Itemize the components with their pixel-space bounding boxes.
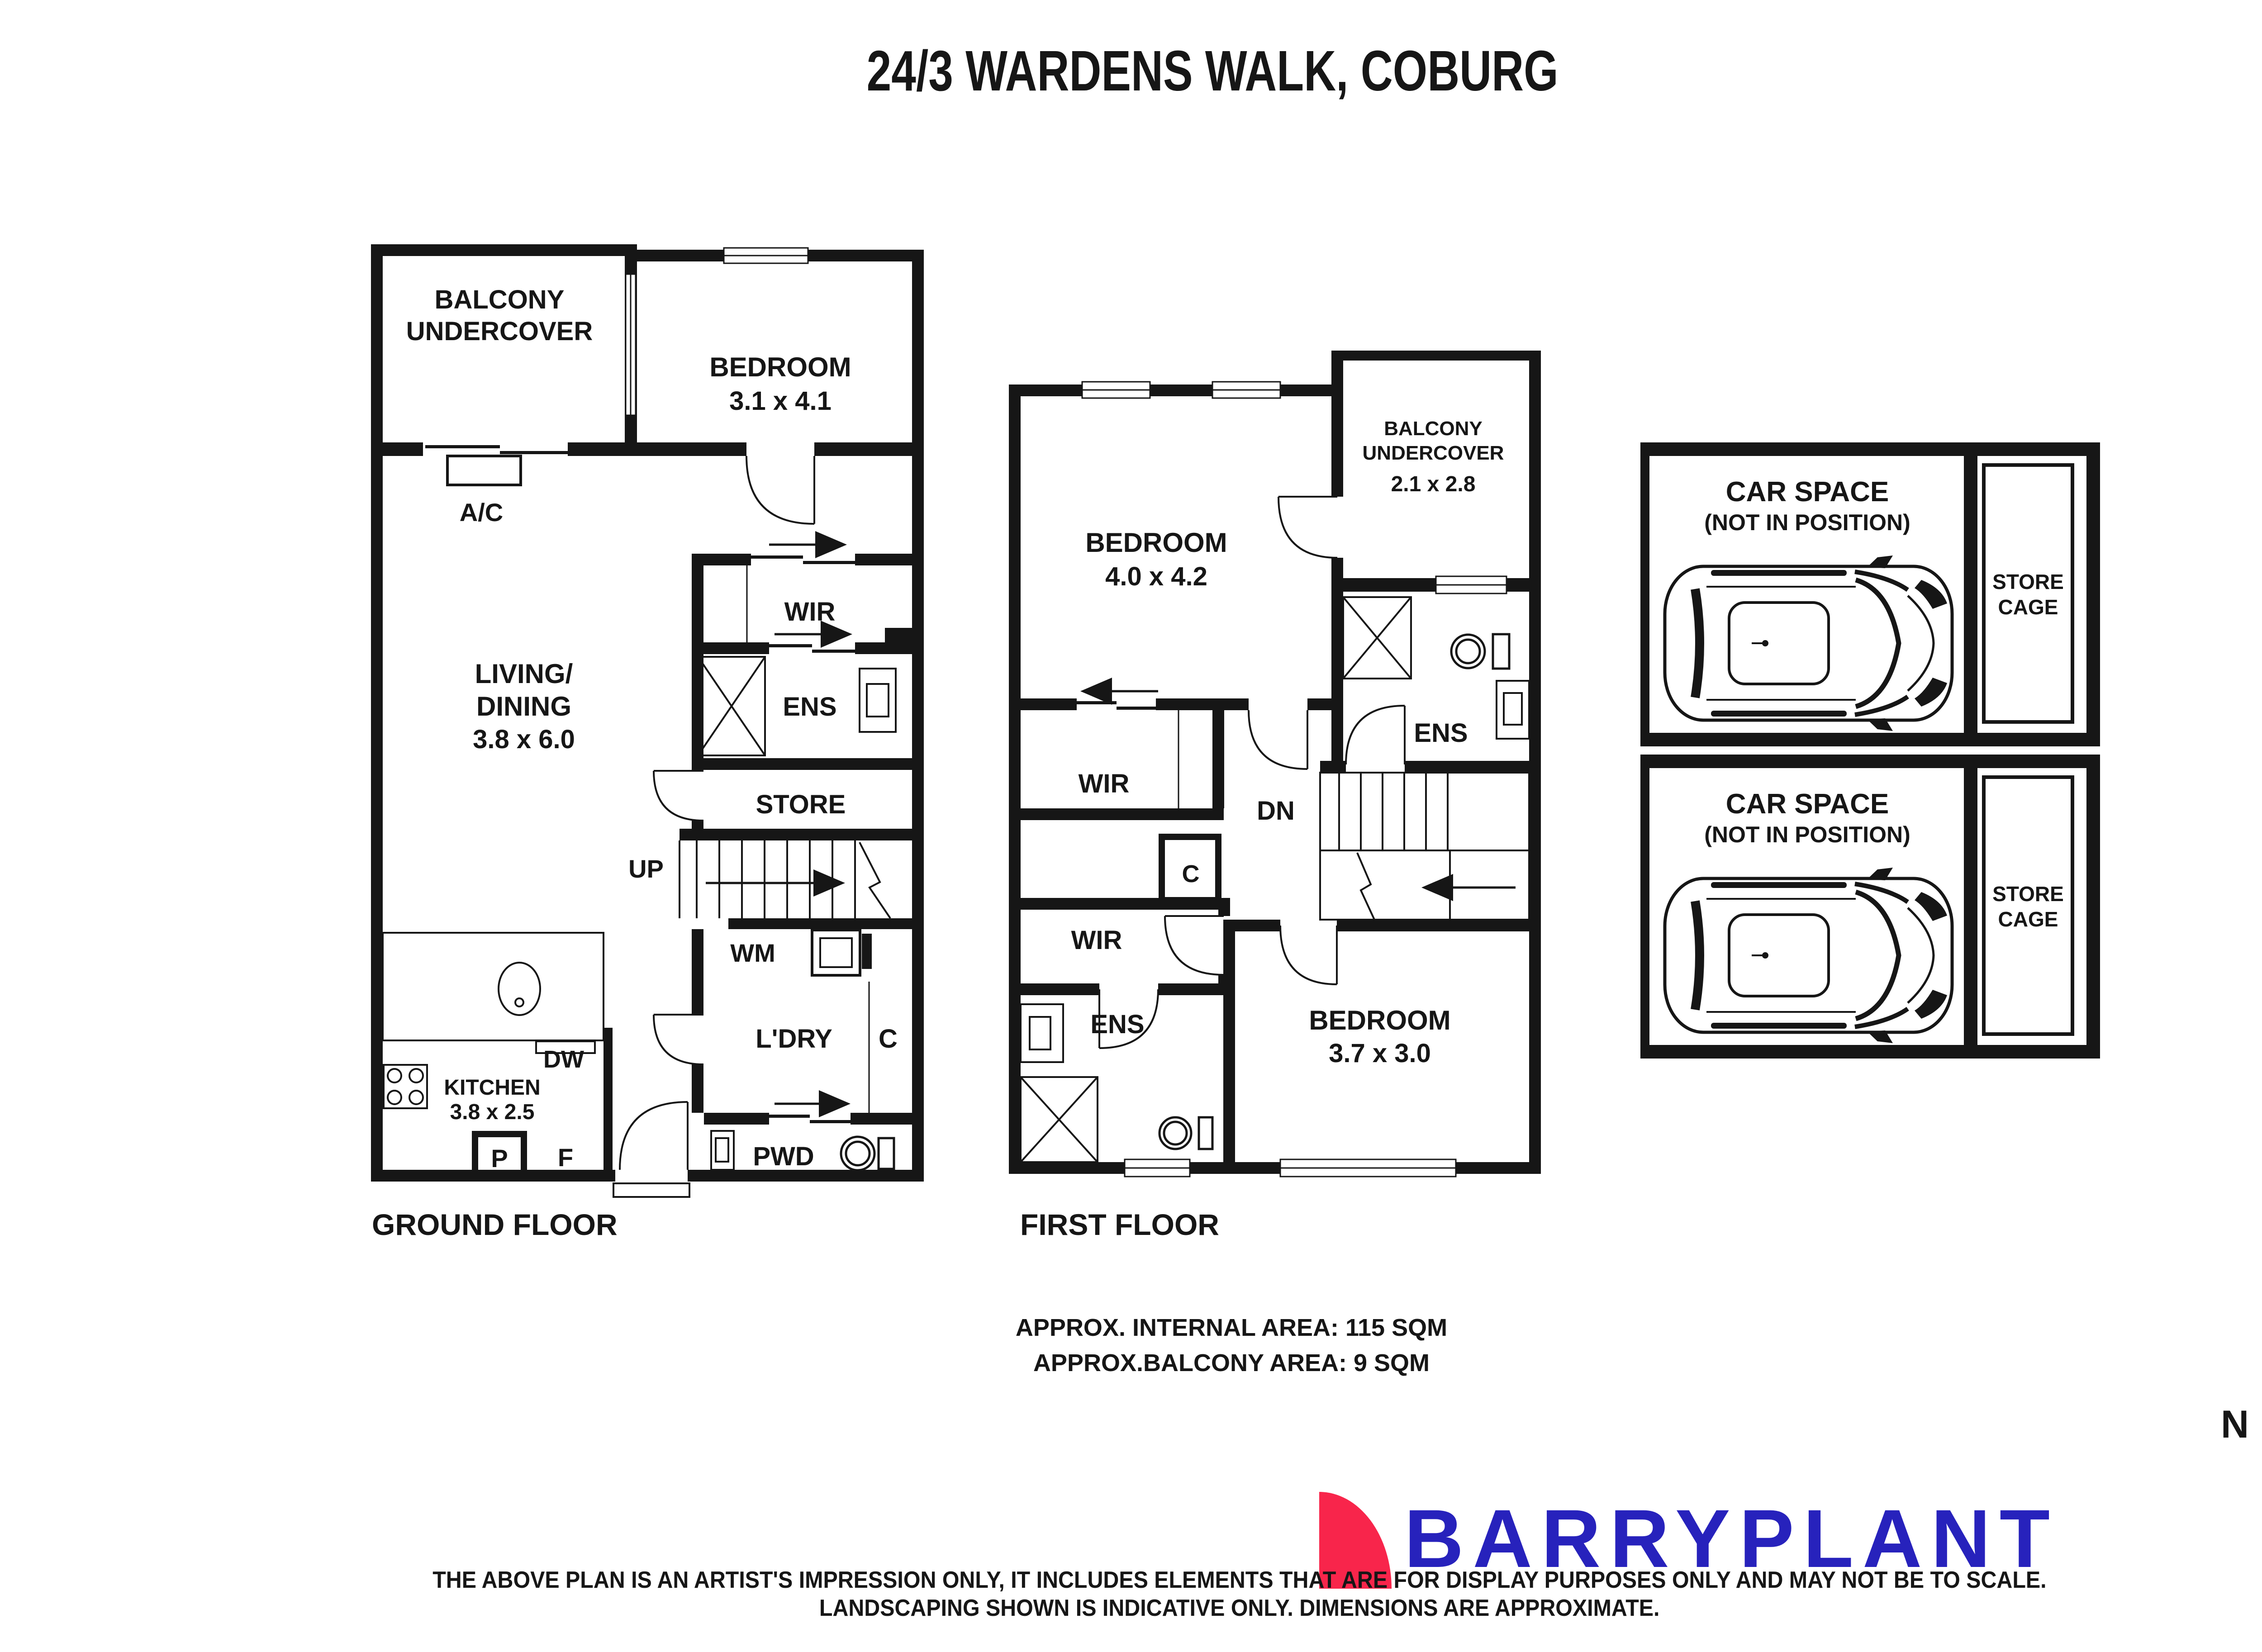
car-space-1-sublabel: (NOT IN POSITION) xyxy=(1704,510,1910,535)
gf-kitchen-label: KITCHEN xyxy=(444,1076,540,1100)
gf-bedroom-dims: 3.1 x 4.1 xyxy=(729,386,832,416)
ff-wir1-label: WIR xyxy=(1079,769,1130,798)
gf-ens-shower xyxy=(698,657,765,755)
balcony-area-text: APPROX.BALCONY AREA: 9 SQM xyxy=(915,1345,1548,1381)
north-compass: N xyxy=(2194,1348,2262,1506)
gf-stairs xyxy=(680,840,890,918)
store-cage-2 xyxy=(1984,777,2072,1034)
gf-f-label: F xyxy=(558,1143,573,1172)
ff-windows xyxy=(1082,382,1506,1177)
ff-ens1-label: ENS xyxy=(1414,718,1468,748)
gf-ens-label: ENS xyxy=(783,692,836,722)
ff-c-label: C xyxy=(1182,860,1200,888)
gf-bedroom-label: BEDROOM xyxy=(709,352,851,382)
ff-ens2-label: ENS xyxy=(1090,1010,1144,1039)
gf-sliding-doors xyxy=(425,445,855,1123)
ff-balcony-dims: 2.1 x 2.8 xyxy=(1391,472,1476,496)
store-cage-2-label-1: STORE xyxy=(1992,882,2064,906)
gf-store-label: STORE xyxy=(756,790,846,819)
north-label: N xyxy=(2221,1403,2249,1446)
gf-wir-label: WIR xyxy=(784,597,836,627)
washing-machine xyxy=(812,930,872,975)
store-cage-2-label-2: CAGE xyxy=(1998,907,2058,931)
ground-floor-plan: BALCONY UNDERCOVER BEDROOM 3.1 x 4.1 A/C… xyxy=(362,199,959,1248)
first-floor-plan: BEDROOM 4.0 x 4.2 BALCONY UNDERCOVER 2.1… xyxy=(1000,339,1574,1271)
gf-ac-label: A/C xyxy=(460,498,503,527)
ff-dn-label: DN xyxy=(1257,796,1295,826)
entry-step xyxy=(613,1183,689,1197)
area-summary: APPROX. INTERNAL AREA: 115 SQM APPROX.BA… xyxy=(915,1310,1548,1381)
car-space-1-label: CAR SPACE xyxy=(1726,476,1889,508)
ff-bedroom3-label: BEDROOM xyxy=(1309,1005,1450,1035)
gf-p-label: P xyxy=(491,1144,508,1173)
first-floor-title: FIRST FLOOR xyxy=(1020,1208,1219,1241)
car-1-icon xyxy=(1665,555,1952,731)
ff-bedroom2-dims: 4.0 x 4.2 xyxy=(1105,562,1207,591)
internal-area-text: APPROX. INTERNAL AREA: 115 SQM xyxy=(915,1310,1548,1345)
cooktop xyxy=(384,1065,427,1108)
ff-bedroom3-dims: 3.7 x 3.0 xyxy=(1329,1039,1431,1068)
ground-floor-title: GROUND FLOOR xyxy=(372,1208,618,1241)
store-cage-1-label-1: STORE xyxy=(1992,570,2064,593)
car-space-2-sublabel: (NOT IN POSITION) xyxy=(1704,822,1910,847)
gf-kitchen-dims: 3.8 x 2.5 xyxy=(450,1100,535,1124)
ff-sliding-doors xyxy=(1077,701,1156,710)
disclaimer: THE ABOVE PLAN IS AN ARTIST'S IMPRESSION… xyxy=(344,1566,2135,1622)
gf-living-label-1: LIVING/ xyxy=(475,659,573,689)
gf-balcony-label-2: UNDERCOVER xyxy=(406,317,593,346)
store-cage-1 xyxy=(1984,465,2072,722)
gf-c-label: C xyxy=(879,1024,898,1054)
page-title: 24/3 WARDENS WALK, COBURG xyxy=(769,38,1651,106)
gf-ldry-label: L'DRY xyxy=(756,1024,832,1054)
gf-wm-label: WM xyxy=(730,939,775,967)
gf-balcony-label-1: BALCONY xyxy=(435,285,565,314)
gf-living-label-2: DINING xyxy=(476,691,571,722)
store-cage-1-label-2: CAGE xyxy=(1998,595,2058,619)
pwd-toilet xyxy=(841,1137,894,1170)
ac-unit xyxy=(447,456,521,485)
car-spaces-plan: CAR SPACE (NOT IN POSITION) STORE CAGE C… xyxy=(1629,430,2140,1072)
disclaimer-line-1: THE ABOVE PLAN IS AN ARTIST'S IMPRESSION… xyxy=(344,1566,2135,1594)
gf-dw-label: DW xyxy=(543,1046,584,1073)
gf-living-dims: 3.8 x 6.0 xyxy=(473,725,575,754)
ff-ens1-fixtures xyxy=(1343,597,1529,739)
pwd-vanity xyxy=(711,1131,734,1170)
ff-wir2-label: WIR xyxy=(1071,926,1122,955)
kitchen-bench xyxy=(383,933,604,1053)
disclaimer-line-2: LANDSCAPING SHOWN IS INDICATIVE ONLY. DI… xyxy=(344,1594,2135,1622)
ff-stairs xyxy=(1320,773,1529,920)
gf-slide-arrows xyxy=(769,545,848,1104)
ff-balcony-label-1: BALCONY xyxy=(1384,418,1483,440)
ff-bedroom2-label: BEDROOM xyxy=(1085,527,1227,558)
gf-up-label: UP xyxy=(628,854,664,883)
gf-pwd-label: PWD xyxy=(753,1142,814,1171)
car-space-2-label: CAR SPACE xyxy=(1726,788,1889,820)
gf-ens-vanity xyxy=(860,669,896,732)
car-2-icon xyxy=(1665,868,1952,1043)
ff-balcony-label-2: UNDERCOVER xyxy=(1363,442,1504,464)
